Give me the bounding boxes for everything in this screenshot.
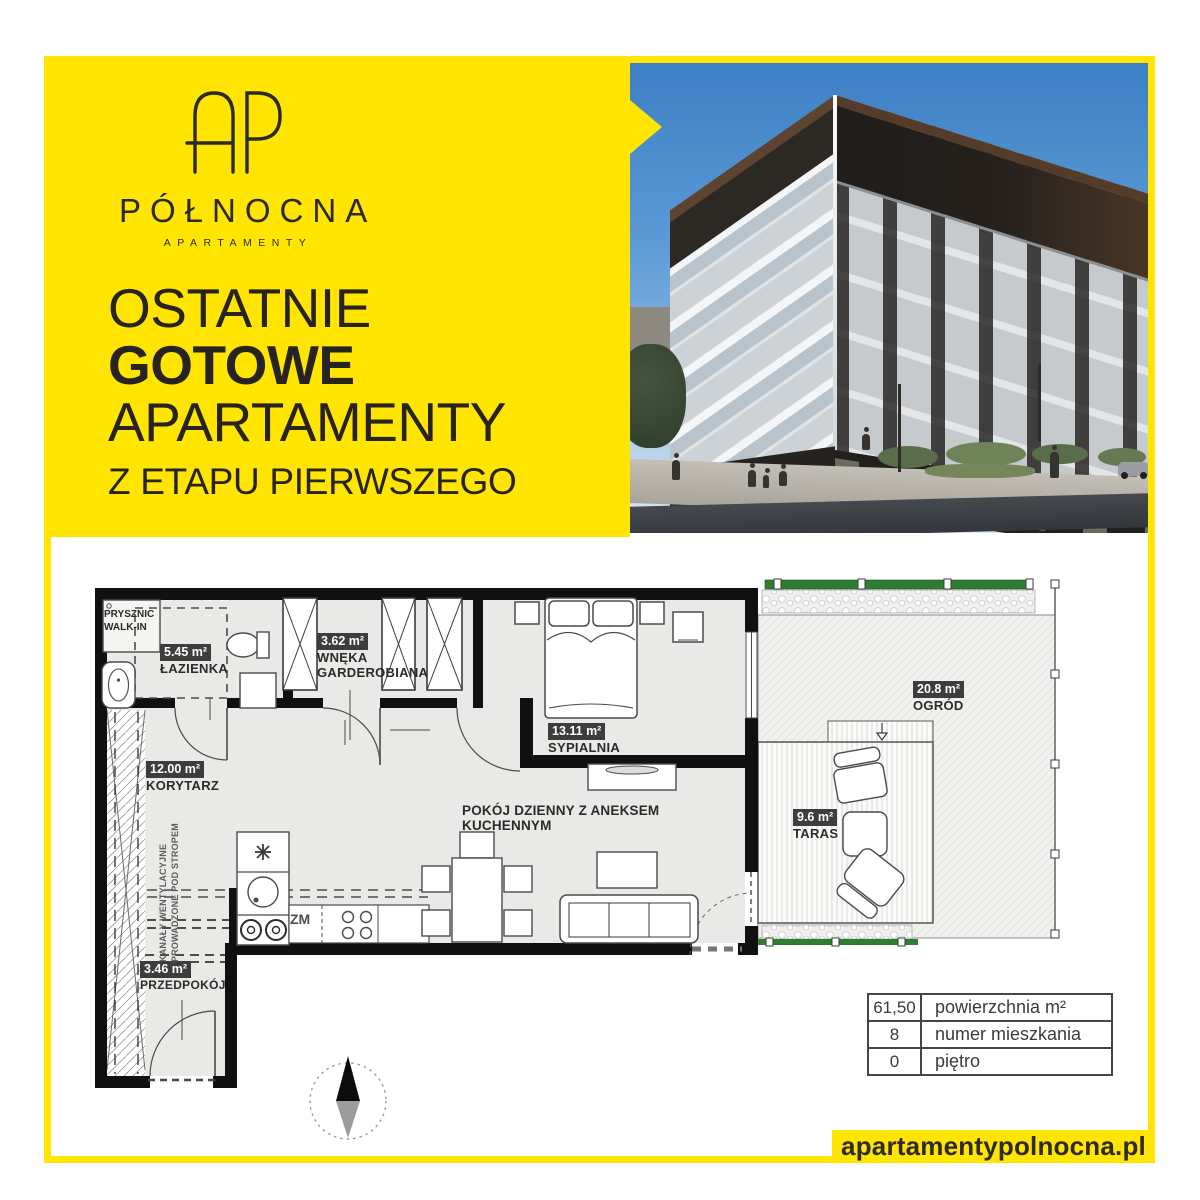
area-badge: 20.8 m² [913,681,964,698]
pedestrian [1050,452,1059,478]
floor-label: piętro [921,1048,1112,1075]
brand-logo-block: PÓŁNOCNA APARTAMENTY [110,88,360,249]
room-name: TARAS [793,827,838,842]
area-value: 61,50 [868,994,921,1021]
frame-right [1148,56,1155,1163]
pedestrian [672,460,680,480]
vent-annotation-line1: KANAŁY WENTYLACYJNE [158,802,168,962]
pedestrian [763,475,769,488]
room-label-living: POKÓJ DZIENNY Z ANEKSEM KUCHENNYM [462,803,722,833]
dishwasher-annotation: ZM [290,911,310,927]
website-link[interactable]: apartamentypolnocna.pl [832,1130,1155,1163]
hero-panel: PÓŁNOCNA APARTAMENTY OSTATNIE GOTOWE APA… [44,56,630,537]
roof-band [835,95,1148,282]
headline-line-3: APARTAMENTY [108,394,517,451]
room-name: SYPIALNIA [548,741,620,756]
headline: OSTATNIE GOTOWE APARTAMENTY Z ETAPU PIER… [108,280,517,503]
room-label-corridor: 12.00 m² KORYTARZ [146,760,219,794]
tree [630,344,686,448]
street-lamp [898,384,901,472]
ap-monogram-icon [183,88,287,178]
street-lamp [1038,364,1041,442]
area-badge: 3.62 m² [317,633,368,650]
apartment-number-label: numer mieszkania [921,1021,1112,1048]
bush [1032,444,1088,464]
frame-left [44,56,51,1163]
bush [878,446,938,468]
area-badge: 13.11 m² [548,723,605,740]
room-label-wardrobe: 3.62 m² WNĘKA GARDEROBIANA [317,632,409,681]
compass-north-icon [310,1056,386,1139]
poster: PÓŁNOCNA APARTAMENTY OSTATNIE GOTOWE APA… [0,0,1200,1200]
area-badge: 5.45 m² [160,644,211,661]
building-render-photo [630,62,1148,533]
area-badge: 12.00 m² [146,761,204,778]
apartment-info-table: 61,50 powierzchnia m² 8 numer mieszkania… [867,993,1113,1076]
room-name: ŁAZIENKA [160,662,228,677]
room-name: PRZEDPOKÓJ [140,979,226,993]
room-label-hall: 3.46 m² PRZEDPOKÓJ [140,960,226,993]
area-label: powierzchnia m² [921,994,1112,1021]
headline-line-1: OSTATNIE [108,280,517,337]
shower-annotation: PRYSZNIC WALK-IN [104,608,166,634]
floor-value: 0 [868,1048,921,1075]
roof-band [670,95,835,269]
apartment-number-value: 8 [868,1021,921,1048]
grass [925,464,1035,478]
table-row: 0 piętro [868,1048,1112,1075]
bush [946,442,1026,466]
table-row: 8 numer mieszkania [868,1021,1112,1048]
building-corner [833,95,837,467]
area-badge: 3.46 m² [140,961,191,978]
hero-arrow-icon [630,100,662,154]
brand-name: PÓŁNOCNA [110,192,360,230]
car [1118,462,1148,476]
pedestrian [779,471,787,486]
brand-subtitle: APARTAMENTY [110,237,360,249]
headline-line-2: GOTOWE [108,337,517,394]
area-badge: 9.6 m² [793,809,837,826]
room-label-bedroom: 13.11 m² SYPIALNIA [548,722,620,756]
pedestrian [862,434,870,450]
room-name: OGRÓD [913,699,964,714]
room-name: WNĘKA GARDEROBIANA [317,651,409,681]
frame-top [44,56,1155,63]
room-name: KORYTARZ [146,779,219,794]
pedestrian [748,470,756,487]
vent-annotation-line2: PROWADZONE POD STROPEM [170,802,180,962]
table-row: 61,50 powierzchnia m² [868,994,1112,1021]
room-label-bathroom: 5.45 m² ŁAZIENKA [160,643,228,677]
room-label-garden: 20.8 m² OGRÓD [913,680,964,714]
room-label-terrace: 9.6 m² TARAS [793,808,838,842]
headline-line-4: Z ETAPU PIERWSZEGO [108,461,517,503]
